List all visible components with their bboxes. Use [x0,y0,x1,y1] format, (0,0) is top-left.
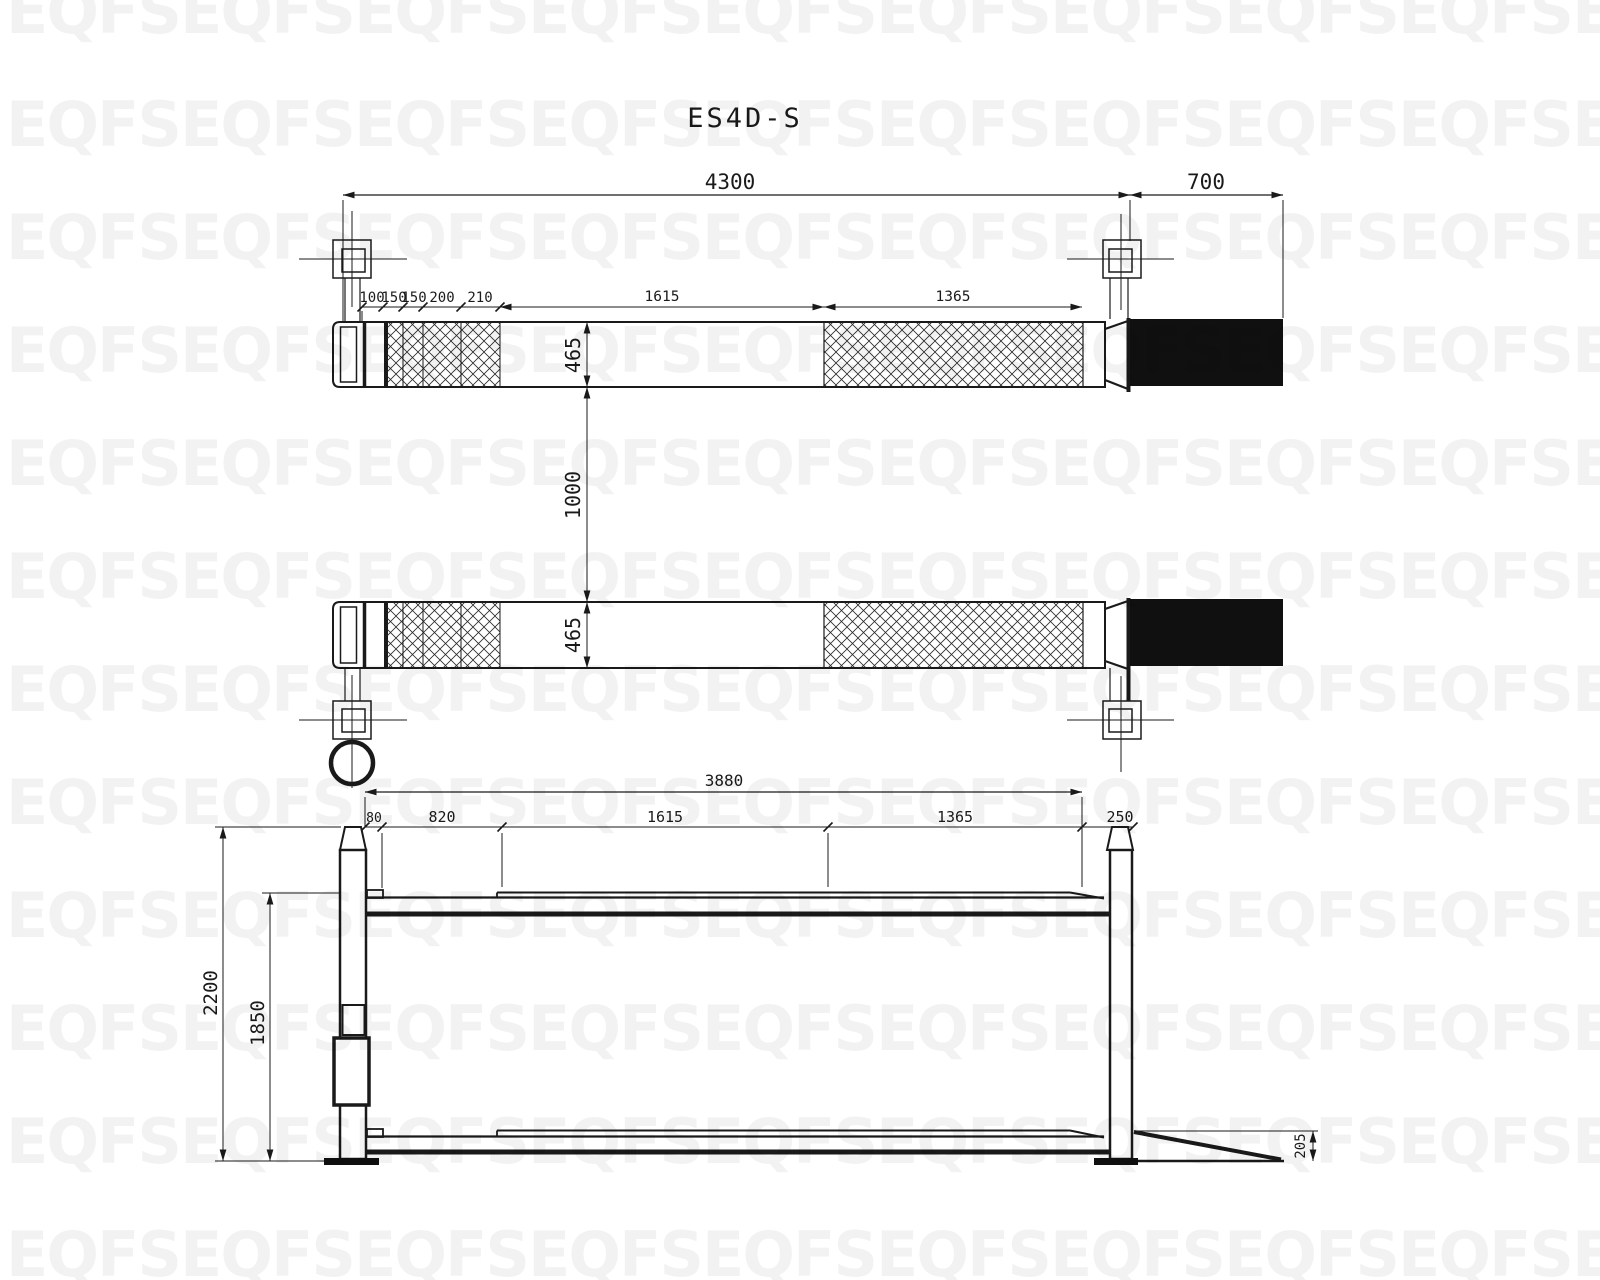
lift-post-bottom-left [299,668,407,788]
platform-top [333,318,1283,392]
dim-track-gap: 1000 [561,471,585,519]
model-title: ES4D-S [687,103,803,134]
dim-seg-820: 820 [428,808,455,826]
dim-seg-1365: 1365 [937,808,973,826]
drive-on-ramp-side [1134,1132,1281,1160]
dim-seg-250: 250 [1106,808,1133,826]
dim-width-top: 465 [561,337,585,373]
wheel-stop-plate [341,607,357,663]
drawing-sheet: ES4D-S 4300 700 100 150 150 200 210 1615… [0,0,1600,1280]
dim-overall-length: 4300 [705,170,756,194]
dim-seg-1615: 1615 [645,289,680,305]
dim-width-bottom: 465 [561,617,585,653]
dim-seg-150b: 150 [401,290,426,306]
top-view: ES4D-S 4300 700 100 150 150 200 210 1615… [299,103,1283,788]
technical-drawing: ES4D-S 4300 700 100 150 150 200 210 1615… [0,0,1600,1280]
platform-bottom [333,598,1283,701]
base-plate-right [1094,1158,1138,1165]
tread-plate-hatch [824,322,1083,387]
post-left-side [324,827,379,1165]
carriage-block [343,1005,365,1035]
drive-on-ramp-bottom [1130,599,1283,666]
dim-seg-200: 200 [429,290,454,306]
dim-seg-1365: 1365 [936,289,971,305]
drive-on-ramp-top [1130,319,1283,386]
dim-seg-80: 80 [366,811,382,826]
dim-ramp-length: 700 [1187,170,1225,194]
base-plate-left [324,1158,379,1165]
tread-plate-hatch [824,602,1083,668]
lift-post-top-right [1067,214,1174,319]
dim-lift-height: 1850 [247,1000,269,1046]
dim-seg-210: 210 [467,290,492,306]
tread-plate-hatch [387,602,500,668]
tread-plate-hatch [387,322,500,387]
power-unit-box [334,1038,369,1105]
post-right-side [1094,827,1138,1165]
wheel-stop-plate [341,327,357,382]
platform-lowered [366,1129,1110,1152]
dim-overall-height: 2200 [200,970,222,1016]
dim-heights: 2200 1850 [200,827,341,1161]
platform-raised [366,890,1110,914]
lift-post-bottom-right [1067,668,1174,772]
dim-platform-length: 3880 [705,771,744,790]
side-view: 3880 80 820 1615 1365 250 2200 1850 [200,771,1318,1165]
dim-seg-1615: 1615 [647,808,683,826]
dim-205: 205 [1293,1133,1309,1158]
